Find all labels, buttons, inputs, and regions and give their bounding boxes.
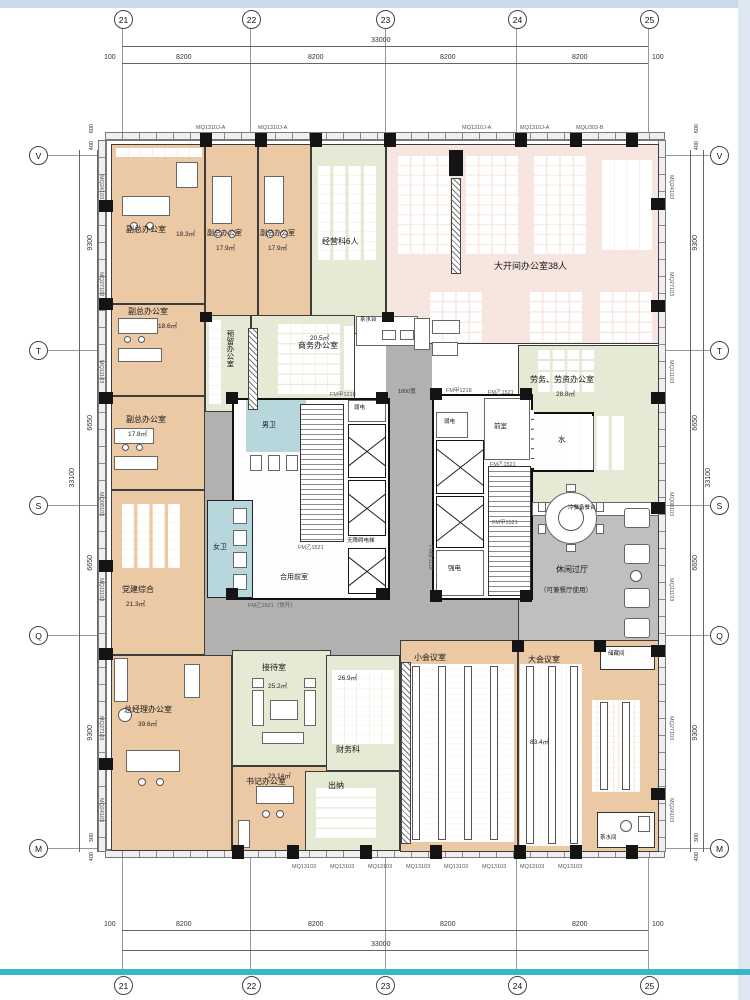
dim-line (122, 63, 648, 64)
grid-line (122, 858, 123, 970)
curtain-wall-right (658, 140, 666, 852)
elevator-shaft (348, 424, 386, 478)
room-name: 副总办公室 (126, 225, 166, 234)
column (515, 133, 527, 147)
chair (138, 778, 146, 786)
dim-small: 300 (89, 833, 95, 842)
wall-label: MQ27103 (668, 272, 674, 296)
chair (122, 444, 129, 451)
grid-label: Q (35, 631, 42, 641)
grid-label: M (35, 844, 42, 854)
chair (138, 336, 145, 343)
dim-small: 600 (694, 124, 700, 133)
room-name: 财务科 (336, 746, 360, 754)
dim-span: 6650 (692, 415, 699, 431)
room-name: 总经理办公室 (124, 706, 172, 714)
wall-label-bottom: MQ13103 (406, 864, 430, 870)
column (651, 788, 665, 800)
dim-span: 6650 (87, 555, 94, 571)
dim-span: 6650 (87, 415, 94, 431)
grid-line (250, 27, 251, 135)
tea-appliance (400, 330, 414, 340)
grid-label: 25 (645, 981, 654, 991)
column (99, 200, 113, 212)
room-name: 大开间办公室38人 (494, 262, 567, 271)
room-area: 26.9㎡ (338, 672, 357, 682)
corridor-width-note: 1800宽 (398, 390, 416, 396)
room-name: 商务办公室 (298, 342, 338, 350)
conference-table (600, 702, 608, 790)
column (310, 133, 322, 147)
core-label-weak-power: 弱电 (354, 406, 365, 412)
chair (596, 502, 604, 512)
office-desk (264, 176, 284, 224)
column (200, 312, 212, 322)
armchair (624, 618, 650, 638)
column (99, 298, 113, 310)
lounge-table (432, 342, 458, 356)
column (232, 845, 244, 859)
desk-cluster (278, 324, 340, 394)
column (570, 133, 582, 147)
dim-line (122, 930, 648, 931)
column (514, 845, 526, 859)
conference-table (490, 666, 498, 840)
room-note: （可兼餐厅使用） (540, 584, 592, 594)
armchair (624, 588, 650, 608)
cabinet (176, 162, 198, 188)
stair-1 (300, 404, 344, 542)
room-name: 副总办公室 (207, 230, 242, 237)
column (384, 133, 396, 147)
door-label: FM乙1521 (488, 388, 514, 396)
chair (136, 444, 143, 451)
grid-line (385, 858, 386, 970)
chair (566, 544, 576, 552)
grid-label: 21 (119, 981, 128, 991)
grid-label: T (36, 346, 41, 356)
dim-span: 8200 (572, 54, 588, 61)
grid-bubble-21b: 21 (114, 976, 133, 995)
elevator-shaft (348, 480, 386, 536)
door-label: FM乙1521 (298, 543, 324, 551)
grid-bubble-Q: Q (29, 626, 48, 645)
grid-bubble-T-r: T (710, 341, 729, 360)
grid-line (122, 27, 123, 135)
water-dispenser (638, 816, 650, 832)
wall-label-bottom: MQ13103 (558, 864, 582, 870)
dim-span: 8200 (176, 54, 192, 61)
core-label-women-wc: 女卫 (213, 544, 227, 551)
armchair (624, 544, 650, 564)
grid-bubble-S-r: S (710, 496, 729, 515)
wall-label: MQ11103 (98, 578, 104, 601)
room-name: 书记办公室 (246, 778, 286, 786)
grid-line (250, 858, 251, 970)
wall-label: MQ11103 (668, 578, 674, 601)
column (382, 312, 394, 322)
room-name: 出纳 (328, 782, 344, 790)
column (626, 845, 638, 859)
dim-small: 400 (89, 852, 95, 861)
toilet-fixture (233, 508, 247, 524)
column (287, 845, 299, 859)
grid-bubble-21: 21 (114, 10, 133, 29)
sofa (262, 732, 304, 744)
desk-cluster (534, 156, 586, 254)
bottom-teal-line (0, 969, 750, 975)
core-label-buffet: 冷餐备餐台 (568, 506, 596, 512)
sofa (118, 348, 162, 362)
room-name: 接待室 (262, 664, 286, 672)
room-area: 28.8㎡ (556, 388, 575, 398)
dim-small: 600 (89, 124, 95, 133)
cabinet (114, 658, 128, 702)
office-desk (126, 750, 180, 772)
office-desk (256, 786, 294, 804)
chair (156, 778, 164, 786)
wall-label-bottom: MQ13103 (482, 864, 506, 870)
sofa (252, 690, 264, 726)
dim-total-right: 33100 (705, 468, 712, 487)
floor-plan-canvas: 21 22 23 24 25 33000 8200 8200 8200 8200… (0, 0, 750, 1000)
top-edge-band (0, 0, 750, 8)
toilet-fixture (233, 552, 247, 568)
chair (538, 502, 546, 512)
core-label-water: 水 (558, 436, 566, 444)
desk-cluster (122, 504, 180, 568)
coffee-table (270, 700, 298, 720)
room-area: 18.3㎡ (176, 228, 195, 238)
room-area: 17.9㎡ (268, 242, 287, 252)
sink (620, 820, 632, 832)
room-area: 25.2㎡ (268, 680, 287, 690)
column (430, 388, 442, 400)
grid-bubble-V-r: V (710, 146, 729, 165)
dim-span: 8200 (308, 54, 324, 61)
wall-label-top: MQ1310J-A (196, 125, 225, 131)
elevator-shaft (436, 496, 484, 548)
column (570, 845, 582, 859)
grid-bubble-S: S (29, 496, 48, 515)
grid-label: V (36, 151, 42, 161)
grid-label: T (717, 346, 722, 356)
lounge-sofa (414, 318, 430, 350)
grid-line (516, 858, 517, 970)
stair-2 (488, 466, 531, 596)
desk-cluster (538, 350, 594, 392)
dim-span: 6650 (692, 555, 699, 571)
grid-label: 22 (247, 15, 256, 25)
column (449, 150, 463, 176)
room-name: 储藏间 (608, 652, 625, 658)
dim-total-left: 33100 (69, 468, 76, 487)
dim-small: 400 (694, 141, 700, 150)
grid-label: M (716, 844, 723, 854)
room-name: 茶水间 (600, 836, 617, 842)
cabinet-row (116, 148, 202, 160)
grid-label: S (717, 501, 723, 511)
conference-table (464, 666, 472, 840)
grid-bubble-25b: 25 (640, 976, 659, 995)
room-name: 经营科6人 (322, 238, 358, 246)
desk-row (344, 326, 354, 390)
dim-line (703, 150, 704, 852)
room-name: 副总办公室 (260, 230, 295, 237)
column (99, 560, 113, 572)
core-label-front-room: 前室 (494, 424, 507, 431)
desk-cluster (566, 416, 624, 470)
column (430, 590, 442, 602)
room-name: 休闲过厅 (556, 566, 588, 574)
door-label: FM甲1521 (492, 518, 518, 526)
grid-label: 24 (513, 981, 522, 991)
grid-bubble-25: 25 (640, 10, 659, 29)
column (651, 300, 665, 312)
column (594, 640, 606, 652)
storage-room (600, 646, 655, 670)
dim-span: 8200 (176, 921, 192, 928)
right-edge-band (738, 0, 750, 1000)
column (99, 648, 113, 660)
dim-edge: 100 (104, 54, 116, 61)
office-desk (118, 318, 158, 334)
room-name: 预留办公室 (226, 330, 234, 368)
chair (566, 484, 576, 492)
dim-small: 400 (694, 852, 700, 861)
column (99, 392, 113, 404)
wall-label-bottom: MQ13103 (444, 864, 468, 870)
grid-label: S (36, 501, 42, 511)
core-label-strong-power: 强电 (448, 566, 461, 573)
grid-label: 23 (381, 981, 390, 991)
dim-span: 8200 (308, 921, 324, 928)
wall-label: MQ24103 (98, 175, 104, 199)
wall-label: MQ08103 (98, 492, 104, 516)
chair (538, 524, 546, 534)
room-name: 小会议室 (414, 654, 446, 662)
shaft-hatch (248, 328, 258, 410)
grid-label: V (717, 151, 723, 161)
grid-label: 25 (645, 15, 654, 25)
dim-span: 9300 (87, 725, 94, 741)
column (99, 758, 113, 770)
desk-cluster (466, 156, 518, 254)
column (651, 198, 665, 210)
dim-span: 9300 (692, 725, 699, 741)
room-area: 17.8㎡ (128, 428, 147, 438)
chair (124, 336, 131, 343)
room-area: 39.6㎡ (138, 718, 157, 728)
core-label-accessible-lift: 无障碍电梯 (346, 539, 376, 545)
desk-cluster (430, 292, 482, 342)
wall-label: MQ24103 (668, 175, 674, 199)
room-area: 21.3㎡ (126, 598, 145, 608)
sofa (114, 456, 158, 470)
column (626, 133, 638, 147)
conference-table (548, 666, 556, 844)
dim-span: 8200 (572, 921, 588, 928)
grid-line (648, 858, 649, 970)
grid-label: 24 (513, 15, 522, 25)
desk-cluster (602, 160, 652, 250)
dim-span: 9300 (87, 235, 94, 251)
toilet-fixture (268, 455, 280, 471)
desk-cluster (316, 788, 376, 838)
grid-bubble-22b: 22 (242, 976, 261, 995)
door-label: FM乙1521（常开） (248, 601, 296, 609)
dim-total-top: 33000 (371, 37, 390, 44)
column (651, 645, 665, 657)
column (430, 845, 442, 859)
wall-label-top: MQU303-B (576, 125, 604, 131)
wall-label-top: MQ1310J-A (258, 125, 287, 131)
room-area: 83.4㎡ (530, 736, 549, 746)
conference-table (412, 666, 420, 840)
column (255, 133, 267, 147)
wall-label-bottom: MQ13103 (520, 864, 544, 870)
grid-label: 22 (247, 981, 256, 991)
dim-total-bottom: 33000 (371, 941, 390, 948)
dim-edge: 100 (652, 54, 664, 61)
dim-span: 9300 (692, 235, 699, 251)
tea-appliance (382, 330, 396, 340)
room-name: 大会议室 (528, 656, 560, 664)
column (376, 588, 388, 600)
office-desk (122, 196, 170, 216)
door-label: FM乙1521 (490, 460, 516, 468)
wall-label-bottom: MQ13103 (368, 864, 392, 870)
grid-bubble-Q-r: Q (710, 626, 729, 645)
column (360, 845, 372, 859)
core-label-men-wc: 男卫 (262, 422, 276, 429)
dim-edge: 100 (104, 921, 116, 928)
wall-label-top: MQ1310J-A (462, 125, 491, 131)
grid-bubble-T: T (29, 341, 48, 360)
dim-span: 8200 (440, 54, 456, 61)
strong-power-room (436, 550, 484, 596)
grid-label: 21 (119, 15, 128, 25)
grid-bubble-23: 23 (376, 10, 395, 29)
conference-table (622, 702, 630, 790)
toilet-fixture (233, 530, 247, 546)
room-name: 副总办公室 (128, 308, 168, 316)
room-area: 18.6㎡ (158, 320, 177, 330)
chair (596, 524, 604, 534)
dim-small: 400 (89, 141, 95, 150)
grid-label: 23 (381, 15, 390, 25)
column (376, 392, 388, 404)
wall-label: MQ27103 (98, 272, 104, 296)
conference-table (526, 666, 534, 844)
armchair (624, 508, 650, 528)
grid-bubble-23b: 23 (376, 976, 395, 995)
conference-table (438, 666, 446, 840)
door-label: FM甲1218 (330, 390, 356, 398)
grid-label: Q (716, 631, 723, 641)
column (226, 392, 238, 404)
side-table (304, 678, 316, 688)
grid-bubble-M-r: M (710, 839, 729, 858)
core-label-tea: 茶水台 (360, 318, 377, 324)
wall-label-bottom: MQ13103 (292, 864, 316, 870)
wall-label: MQ11103 (98, 360, 104, 383)
wall-label: MQ08103 (668, 492, 674, 516)
toilet-fixture (286, 455, 298, 471)
room-name: 党建综合 (122, 586, 154, 594)
sofa (304, 690, 316, 726)
column (651, 502, 665, 514)
side-table (252, 678, 264, 688)
side-table (630, 570, 642, 582)
dim-line (122, 950, 648, 951)
desk-cluster (398, 156, 450, 254)
dim-line (79, 150, 80, 852)
chair (262, 810, 270, 818)
desk-row (209, 320, 225, 404)
shaft-hatch (451, 178, 461, 274)
column (520, 388, 532, 400)
wall-label: MQ27103 (98, 716, 104, 740)
column (520, 590, 532, 602)
shaft-hatch (401, 662, 411, 844)
front-room (484, 398, 530, 460)
grid-bubble-24: 24 (508, 10, 527, 29)
sofa (184, 664, 200, 698)
cabinet (238, 820, 250, 848)
room-area: 17.9㎡ (216, 242, 235, 252)
room-label: 副总办公室 (126, 226, 166, 234)
column (651, 392, 665, 404)
dim-edge: 100 (652, 921, 664, 928)
dim-line (690, 150, 691, 852)
grid-line (648, 27, 649, 135)
dim-small: 300 (694, 833, 700, 842)
toilet-fixture (250, 455, 262, 471)
desk-cluster (600, 292, 652, 342)
grid-bubble-M: M (29, 839, 48, 858)
grid-line (516, 27, 517, 135)
door-label: FM甲1118 (426, 545, 434, 570)
elevator-shaft (436, 440, 484, 494)
room-name: 劳务、劳资办公室 (530, 376, 594, 384)
wall-label: MQ24103 (668, 798, 674, 822)
core-label-weak-power: 弱电 (444, 420, 455, 426)
office-desk (212, 176, 232, 224)
room-name: 副总办公室 (126, 416, 166, 424)
grid-bubble-V: V (29, 146, 48, 165)
column (226, 588, 238, 600)
door-label: FM甲1218 (446, 386, 472, 394)
wall-label-top: MQ1310J-A (520, 125, 549, 131)
core-label-shared-front: 合用前室 (280, 574, 308, 581)
conference-table (570, 666, 578, 844)
grid-bubble-24b: 24 (508, 976, 527, 995)
lounge-sofa (432, 320, 460, 334)
column (200, 133, 212, 147)
desk-cluster (530, 292, 582, 342)
column (512, 640, 524, 652)
wall-label: MQ11103 (668, 360, 674, 383)
grid-bubble-22: 22 (242, 10, 261, 29)
dim-span: 8200 (440, 921, 456, 928)
wall-label-bottom: MQ13103 (330, 864, 354, 870)
wall-label: MQ27103 (668, 716, 674, 740)
wall-label: MQ24103 (98, 798, 104, 822)
chair (276, 810, 284, 818)
dim-line (122, 46, 648, 47)
